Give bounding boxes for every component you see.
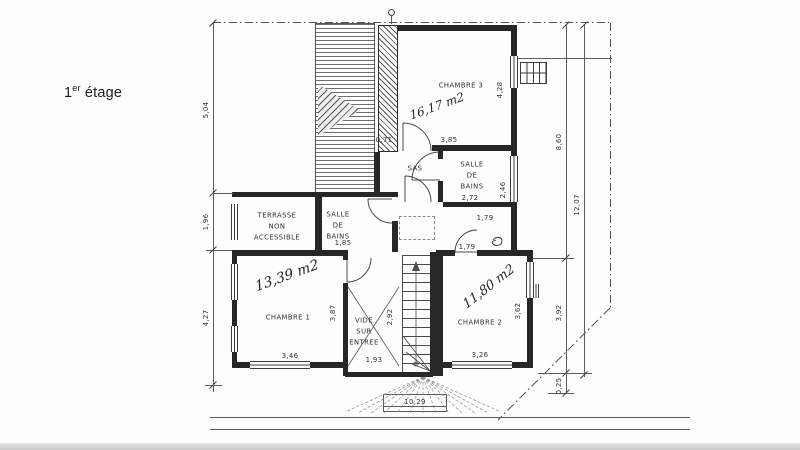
wall [392,221,398,252]
wall [343,283,348,376]
dimension-label: 1,93 [366,356,383,364]
dimension-label: 1,96 [202,214,210,231]
wall [438,181,443,202]
dimension-label: 3,85 [441,136,458,144]
extension-line [517,58,612,59]
dimension-label: 1,79 [477,214,494,222]
wall [436,250,455,256]
extension-line [214,193,234,194]
dimension-label: 4,28 [496,82,504,99]
window [250,361,310,369]
dimension-label: 3,92 [555,305,563,322]
extension-line [210,429,690,430]
dimension-line [213,23,214,392]
dimension-label: 2,72 [462,194,479,202]
wall [315,197,322,252]
dimension-label: 8,60 [555,134,563,151]
plan-linework [0,0,800,450]
room-label-terrasse: TERRASSE NON ACCESSIBLE [254,211,300,244]
extension-line [383,406,447,407]
scan-edge-shadow [0,443,800,450]
dimension-label: 10,29 [404,398,426,406]
wall [343,250,348,260]
window [231,326,238,352]
extension-line [210,417,690,418]
wall [438,151,443,159]
wall [398,25,517,31]
dimension-label: 4,27 [202,310,210,327]
room-label-salle: SALLE DE BAINS [460,160,483,193]
room-label-chambre-1: CHAMBRE 1 [266,313,311,324]
room-label-vide: VIDE SUR ENTREE [349,316,379,349]
wall [232,250,347,256]
room-label-sas: SAS [408,164,423,175]
window [231,264,238,300]
boundary-dashdot-top [213,22,612,23]
dimension-line [566,25,567,393]
dimension-label: 3,87 [329,305,337,322]
wall [374,152,380,197]
window [510,56,518,88]
wall [430,252,443,376]
dimension-label: 1,85 [335,239,352,247]
room-label-salle: SALLE DE BAINS [326,210,349,243]
dimension-label: 0,71 [376,136,393,144]
dimension-label: 1,79 [459,243,476,251]
room-label-chambre-2: CHAMBRE 2 [458,318,503,329]
window-shutter-mark [533,284,539,298]
floor-plan-drawing: CHAMBRE 3SASSALLE DE BAINSTERRASSE NON A… [0,0,800,450]
window [510,156,518,202]
wall [345,372,433,377]
dimension-label: 3,26 [472,351,489,359]
dimension-label: 3,46 [282,352,299,360]
extension-line [533,258,574,259]
pen-scribble [492,237,502,245]
wall [432,145,517,151]
window [452,361,512,369]
dimension-label: 5,04 [202,102,210,119]
boundary-dashdot-right [610,23,611,309]
dimension-label: 12,07 [573,194,581,216]
window [231,204,238,240]
dimension-label: 2,46 [499,182,507,199]
dimension-label: 0,25 [555,378,563,395]
stair-direction-arrow [412,261,420,366]
wall [443,202,517,207]
wall [477,250,533,256]
dimension-label: 3,62 [514,303,522,320]
porch-canopy-fan [345,377,501,413]
dimension-line [584,25,585,377]
dimension-label: 2,92 [386,309,394,326]
